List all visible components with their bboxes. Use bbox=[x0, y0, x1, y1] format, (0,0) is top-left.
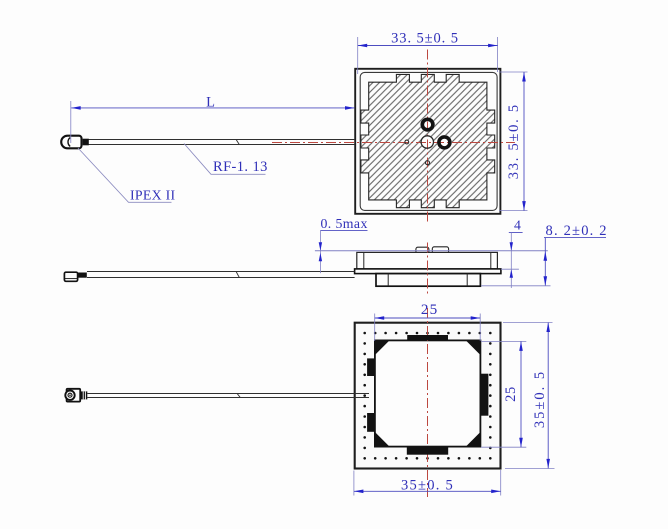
svg-text:35±0. 5: 35±0. 5 bbox=[532, 370, 548, 428]
svg-text:25: 25 bbox=[503, 386, 519, 402]
svg-text:0. 5max: 0. 5max bbox=[321, 216, 368, 231]
svg-text:33. 5±0. 5: 33. 5±0. 5 bbox=[506, 103, 522, 179]
svg-text:RF-1. 13: RF-1. 13 bbox=[213, 159, 268, 175]
svg-text:8. 2±0. 2: 8. 2±0. 2 bbox=[546, 223, 608, 239]
svg-text:L: L bbox=[206, 95, 215, 111]
svg-text:33. 5±0. 5: 33. 5±0. 5 bbox=[391, 31, 459, 47]
svg-text:IPEX II: IPEX II bbox=[130, 188, 176, 203]
svg-text:4: 4 bbox=[514, 218, 521, 233]
svg-text:35±0. 5: 35±0. 5 bbox=[401, 477, 454, 493]
svg-text:25: 25 bbox=[421, 301, 439, 318]
